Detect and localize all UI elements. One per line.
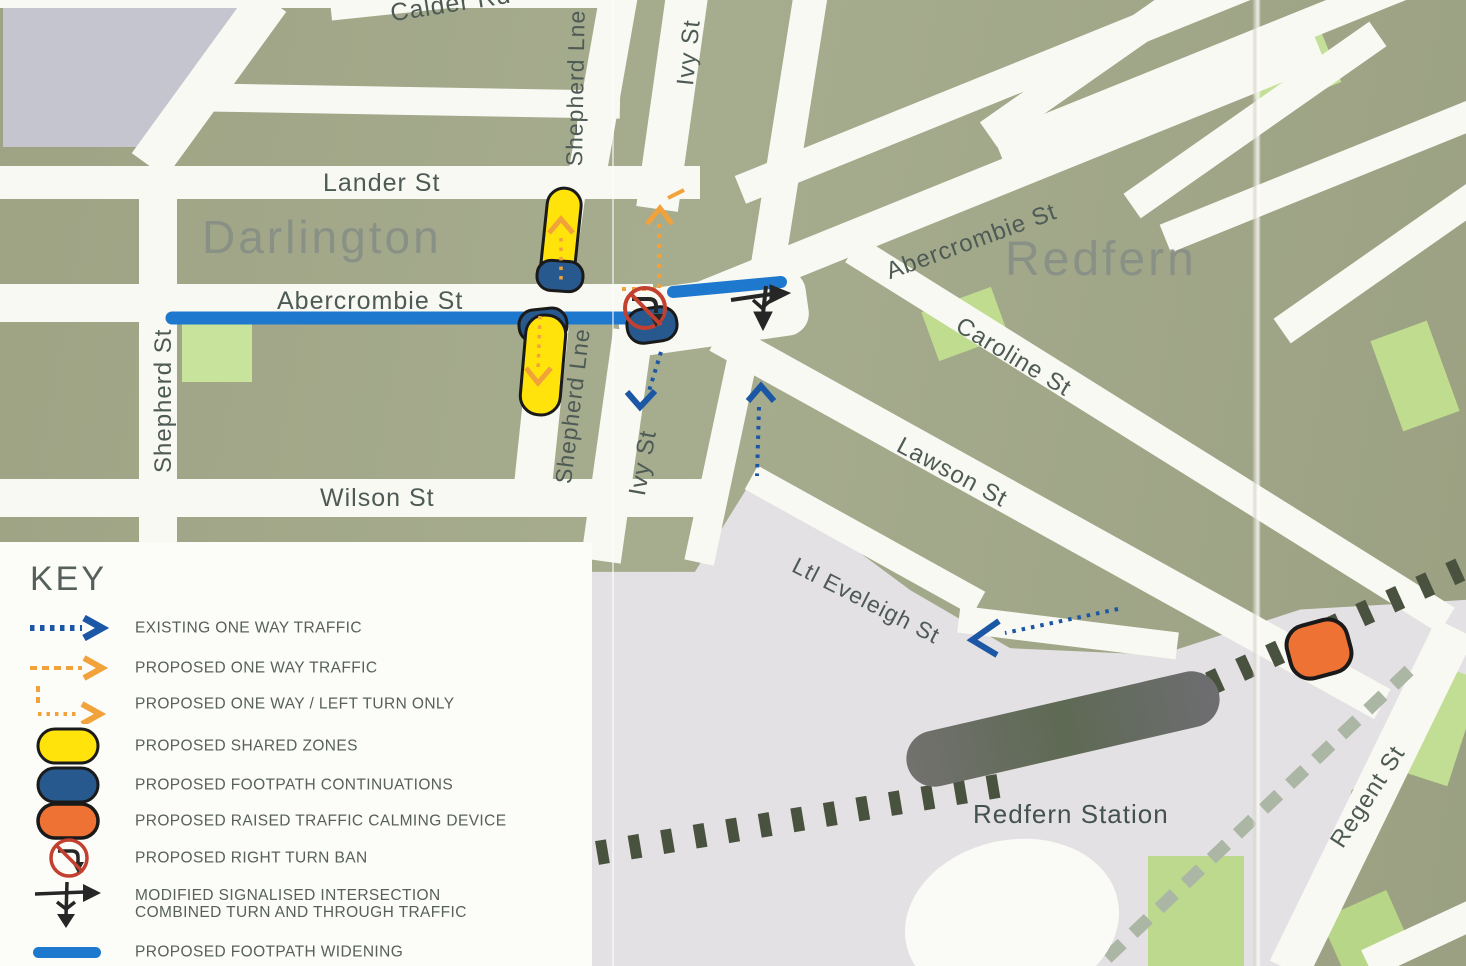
key-row: PROPOSED FOOTPATH WIDENING bbox=[0, 932, 592, 966]
shared-zone-pill-icon bbox=[14, 726, 124, 766]
traffic-plan-map: Calder Rd Lander St Abercrombie St Wilso… bbox=[0, 0, 1466, 966]
existing-one-way-arrow-icon bbox=[14, 608, 124, 648]
key-item-label: PROPOSED FOOTPATH CONTINUATIONS bbox=[135, 777, 453, 794]
key-row: MODIFIED SIGNALISED INTERSECTION COMBINE… bbox=[0, 878, 592, 930]
modified-intersection-arrows-icon bbox=[14, 878, 124, 930]
existing-one-way-arrow-ivy-lne bbox=[748, 386, 774, 476]
footpath-widening-line-icon bbox=[14, 932, 124, 966]
street-label-shepherd-lne-north: Shepherd Lne bbox=[561, 10, 591, 167]
suburb-label-redfern: Redfern bbox=[1005, 232, 1197, 287]
key-item-label: EXISTING ONE WAY TRAFFIC bbox=[135, 620, 362, 637]
railway-dashes-west bbox=[597, 784, 1010, 853]
street-label-wilson-st: Wilson St bbox=[320, 484, 435, 513]
street-label-abercrombie-st-west: Abercrombie St bbox=[277, 287, 463, 316]
key-item-label: PROPOSED ONE WAY TRAFFIC bbox=[135, 660, 377, 677]
street-label-shepherd-st: Shepherd St bbox=[150, 329, 178, 473]
station-label-redfern-station: Redfern Station bbox=[973, 799, 1169, 830]
key-row: EXISTING ONE WAY TRAFFIC bbox=[0, 608, 592, 648]
traffic-calming-device-lawson-regent bbox=[1282, 615, 1356, 683]
proposed-left-turn-only-arrow-ivy-st bbox=[622, 190, 684, 289]
key-item-label: PROPOSED SHARED ZONES bbox=[135, 738, 358, 755]
suburb-label-darlington: Darlington bbox=[202, 210, 442, 264]
key-row: PROPOSED ONE WAY / LEFT TURN ONLY bbox=[0, 684, 592, 724]
key-item-label: PROPOSED RAISED TRAFFIC CALMING DEVICE bbox=[135, 813, 506, 830]
redfern-station-pill bbox=[901, 666, 1225, 793]
street-label-lander-st: Lander St bbox=[323, 169, 440, 198]
existing-one-way-arrow-ivy-st-south bbox=[627, 352, 661, 407]
footpath-continuation-pill-icon bbox=[14, 765, 124, 805]
key-row: PROPOSED RIGHT TURN BAN bbox=[0, 838, 592, 878]
key-item-label: PROPOSED ONE WAY / LEFT TURN ONLY bbox=[135, 696, 455, 713]
key-row: PROPOSED ONE WAY TRAFFIC bbox=[0, 648, 592, 688]
key-item-label: MODIFIED SIGNALISED INTERSECTION COMBINE… bbox=[135, 887, 467, 921]
map-key-panel: KEY EXISTING ONE WAY TRAFFIC PROPOSED ON… bbox=[0, 542, 592, 966]
existing-one-way-arrow-ltl-eveleigh bbox=[972, 609, 1118, 655]
proposed-left-turn-arrow-icon bbox=[14, 684, 124, 724]
proposed-one-way-arrow-icon bbox=[14, 648, 124, 688]
key-item-label: PROPOSED FOOTPATH WIDENING bbox=[135, 944, 403, 961]
station-forecourt-blob bbox=[889, 819, 1134, 966]
traffic-calming-pill-icon bbox=[14, 801, 124, 841]
key-item-label: PROPOSED RIGHT TURN BAN bbox=[135, 850, 368, 867]
key-row: PROPOSED FOOTPATH CONTINUATIONS bbox=[0, 765, 592, 805]
key-heading: KEY bbox=[30, 560, 107, 599]
right-turn-ban-sign-icon bbox=[14, 838, 124, 878]
key-row: PROPOSED SHARED ZONES bbox=[0, 726, 592, 766]
key-row: PROPOSED RAISED TRAFFIC CALMING DEVICE bbox=[0, 801, 592, 841]
